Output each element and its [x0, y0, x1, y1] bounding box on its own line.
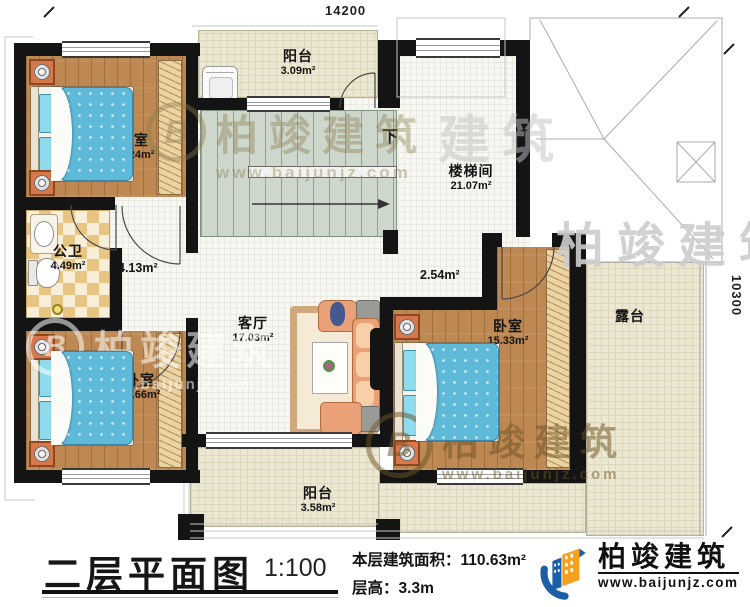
scale-label: 1:100	[264, 554, 327, 583]
pier	[178, 514, 204, 542]
window	[62, 468, 150, 485]
room-label-bathroom: 公卫 4.49m²	[28, 243, 108, 273]
window	[437, 468, 523, 485]
floor-height-row: 层高：3.3m	[352, 576, 526, 598]
nightstand	[394, 440, 420, 466]
room-name: 阳台	[258, 48, 338, 65]
room-area: 21.07m²	[426, 180, 516, 193]
bed-blanket	[62, 351, 133, 445]
stair-handrail	[248, 166, 397, 178]
wall	[400, 40, 416, 56]
wall	[26, 197, 115, 210]
wall	[14, 318, 115, 331]
room-label-stairwell: 楼梯间 21.07m²	[426, 163, 516, 193]
room-area: 3.09m²	[258, 65, 338, 78]
wardrobe	[546, 249, 570, 468]
wall	[352, 434, 380, 447]
nightstand	[29, 59, 55, 85]
floor-area-label: 本层建筑面积：	[352, 552, 461, 569]
terrace-walkway-floor	[378, 483, 586, 533]
brand-logo-icon	[538, 542, 592, 600]
bed-blanket	[62, 87, 133, 181]
brand-website: www.baijunjz.com	[598, 572, 739, 590]
wall	[482, 247, 497, 302]
sofa-set	[288, 300, 380, 438]
terrace-floor	[586, 262, 704, 536]
hallway-area-label: 4.13m²	[118, 261, 158, 276]
wall	[14, 43, 26, 483]
wall	[380, 310, 393, 447]
floor-area-row: 本层建筑面积：110.63m²	[352, 548, 526, 570]
room-area: 4.49m²	[28, 260, 108, 273]
title-underline	[42, 590, 338, 594]
floor-stats: 本层建筑面积：110.63m² 层高：3.3m	[352, 548, 526, 604]
room-label-terrace: 露台	[600, 308, 660, 325]
double-bed	[30, 86, 134, 182]
washer-lid	[209, 77, 233, 99]
headboard	[31, 351, 39, 445]
dimension-right: 10300	[729, 275, 744, 316]
window	[416, 38, 500, 58]
floor-area-value: 110.63m²	[461, 552, 527, 569]
landing-area-label: 2.54m²	[420, 268, 460, 283]
room-name: 阳台	[278, 485, 358, 502]
wall	[330, 98, 344, 110]
room-name: 露台	[600, 308, 660, 325]
coffee-table	[312, 342, 348, 394]
room-area: 3.58m²	[278, 502, 358, 515]
wall	[186, 43, 198, 253]
roof-area	[530, 16, 722, 262]
room-label-balcony-bottom: 阳台 3.58m²	[278, 485, 358, 515]
floor-height-value: 3.3m	[399, 580, 434, 597]
room-name: 客厅	[213, 315, 293, 332]
wall	[516, 40, 530, 237]
title-underline-thin	[42, 597, 338, 598]
window	[247, 96, 330, 112]
brand-logo: 柏竣建筑 www.baijunjz.com	[538, 542, 739, 600]
washer-panel	[206, 72, 234, 73]
room-name: 公卫	[28, 243, 108, 260]
headboard	[31, 87, 39, 181]
floor-plan-canvas: 14200 10300 阳台 3.09m² 卧室 10.24m² 楼梯间 21.…	[0, 0, 750, 607]
stairs-down-label: 下	[382, 128, 398, 147]
headboard	[395, 343, 403, 441]
wardrobe	[158, 60, 182, 195]
room-name: 楼梯间	[426, 163, 516, 180]
wall	[378, 40, 400, 108]
double-bed	[30, 350, 134, 446]
person	[330, 302, 345, 326]
title-block: 二层平面图 1:100 本层建筑面积：110.63m² 层高：3.3m	[0, 540, 750, 607]
wall	[380, 297, 497, 310]
room-name: 卧室	[468, 318, 548, 335]
wall	[182, 434, 206, 447]
flower-vase	[322, 359, 336, 373]
wall	[190, 98, 247, 110]
shower-head	[52, 304, 63, 315]
dimension-top: 14200	[325, 3, 366, 18]
nightstand	[394, 314, 420, 340]
wall	[482, 233, 502, 247]
wall	[186, 318, 198, 483]
armchair	[320, 402, 362, 436]
room-label-balcony-top: 阳台 3.09m²	[258, 48, 338, 78]
brand-name: 柏竣建筑	[598, 542, 739, 571]
sliding-door	[206, 432, 352, 449]
wall	[383, 230, 398, 254]
room-label-living-room: 客厅 17.03m²	[213, 315, 293, 345]
room-area: 17.03m²	[213, 332, 293, 345]
wall	[570, 233, 586, 483]
bed-blanket	[426, 343, 499, 441]
double-bed	[394, 342, 500, 442]
floor-height-label: 层高：	[352, 580, 399, 597]
window	[62, 41, 150, 58]
